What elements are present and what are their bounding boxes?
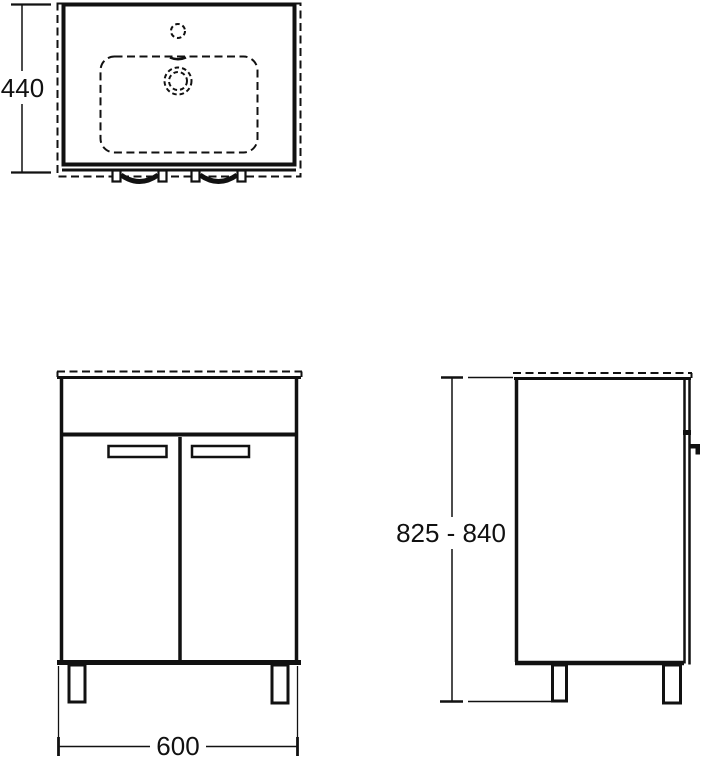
- door-gap-mark: [683, 430, 691, 435]
- dimension-height: 825 - 840: [396, 378, 551, 702]
- dimension-width: 600: [59, 666, 298, 758]
- door-handle-plan-right: [192, 171, 246, 182]
- front-view: 600: [57, 372, 302, 758]
- door-handle-side: [690, 444, 701, 455]
- leg-side-front: [664, 665, 681, 703]
- washbasin-outline: [64, 5, 295, 165]
- overflow-mark: [170, 58, 186, 60]
- basin-bowl-outline: [101, 57, 258, 153]
- leg-front-right: [272, 665, 288, 703]
- dimension-width-label: 600: [156, 731, 199, 758]
- door-handle-right: [192, 446, 249, 457]
- dimension-depth: 440: [1, 5, 51, 173]
- side-view: 825 - 840: [396, 373, 700, 703]
- dimension-depth-label: 440: [1, 73, 44, 103]
- vanity-dimension-drawing: 440 600: [0, 0, 702, 758]
- dimension-height-label: 825 - 840: [396, 518, 506, 548]
- cabinet-hidden-outline: [58, 4, 301, 177]
- technical-drawing: 440 600: [0, 0, 702, 758]
- drain-inner-circle: [169, 72, 187, 90]
- leg-front-left: [69, 665, 85, 702]
- leg-side-back: [553, 665, 567, 701]
- plan-view: 440: [1, 4, 301, 182]
- door-handle-left: [109, 446, 167, 457]
- faucet-hole: [171, 24, 185, 38]
